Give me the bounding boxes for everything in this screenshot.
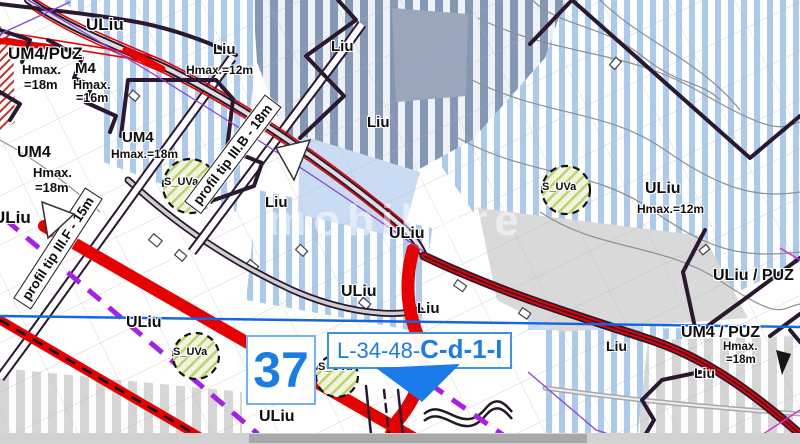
zone-label-uliu-west: ULiu: [0, 209, 31, 227]
zone-label-uliu-center: ULiu: [389, 226, 425, 243]
zone-label-liu-se-b: Liu: [694, 366, 715, 381]
zone-label-liu-a: Liu: [331, 39, 354, 55]
hmax-label: Hmax.: [22, 63, 61, 77]
sheet-location-triangle: [372, 362, 464, 406]
zone-label-liu-c: Liu: [265, 195, 288, 211]
map-sheet-code-prefix: L-34-48-: [337, 338, 420, 364]
zone-label-m4: M4: [75, 61, 96, 77]
green-area-label: S_UVa: [173, 347, 207, 359]
zone-label-liu-top: Liu: [213, 42, 236, 58]
zone-label-um4-west: UM4: [17, 145, 51, 162]
hmax-label: Hmax.=18m: [111, 148, 178, 161]
hmax-label: Hmax.=12m: [186, 64, 253, 77]
zone-label-liu-mid: Liu: [417, 301, 440, 317]
green-area-label: S_UVa: [542, 182, 576, 194]
green-area-label: S_UVa: [164, 177, 198, 189]
horizontal-scrollbar-thumb[interactable]: [249, 434, 587, 443]
zone-label-uliu-sw: ULiu: [126, 315, 162, 332]
zone-label-uliu-bottom: ULiu: [259, 409, 295, 426]
zone-label-uliu-puz-east: ULiu / PUZ: [713, 268, 794, 285]
map-sheet-number: 37: [246, 335, 316, 405]
profile-b-pointer: [272, 138, 316, 184]
zone-label-uliu-mid: ULiu: [341, 284, 377, 301]
hmax-label: =18m: [24, 78, 58, 92]
north-pointer-icon: [770, 348, 796, 378]
zone-label-uliu-east: ULiu: [645, 181, 681, 198]
zone-label-uliu-nw: ULiu: [86, 16, 124, 34]
hmax-label: Hmax.=12m: [637, 203, 704, 216]
map-sheet-code-suffix: C-d-1-I: [420, 334, 502, 365]
zoning-map-viewport: imobiliare ULiu UM4/PUZ Hmax. =18m M4 Hm…: [0, 0, 800, 444]
hmax-label: Hmax.: [33, 166, 72, 180]
map-sheet-number-text: 37: [253, 341, 309, 399]
zone-label-um4-center: UM4: [122, 130, 154, 146]
hmax-label: =18m: [726, 354, 756, 366]
zone-label-liu-se-a: Liu: [606, 339, 627, 354]
horizontal-scrollbar[interactable]: [0, 433, 800, 444]
profile-f-pointer: [38, 198, 78, 242]
hmax-label: =16m: [76, 92, 108, 105]
hmax-label: Hmax.: [723, 341, 758, 353]
zone-label-um4puz-nw: UM4/PUZ: [8, 45, 83, 63]
zone-label-um4puz-se: UM4 / PUZ: [681, 325, 760, 342]
hmax-label: =18m: [35, 181, 69, 195]
zone-label-liu-b: Liu: [367, 115, 390, 131]
